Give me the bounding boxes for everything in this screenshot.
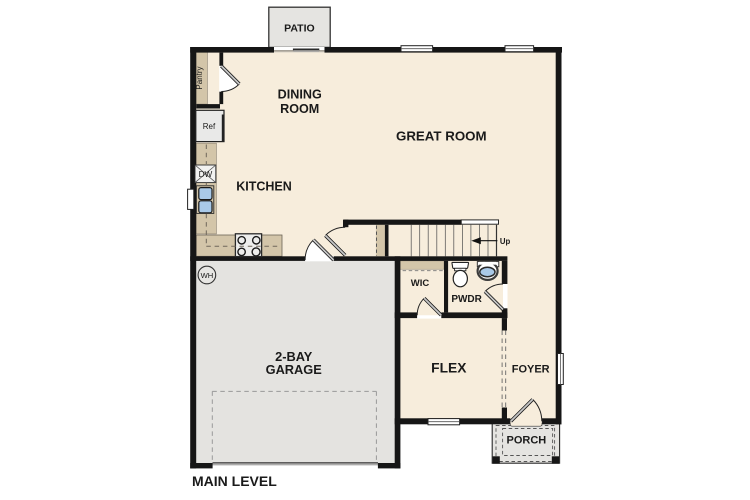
svg-text:PWDR: PWDR: [451, 294, 482, 305]
svg-text:WIC: WIC: [411, 278, 430, 289]
svg-text:PORCH: PORCH: [507, 435, 547, 447]
svg-text:ROOM: ROOM: [280, 102, 319, 116]
svg-text:DW: DW: [199, 170, 213, 179]
svg-text:GARAGE: GARAGE: [266, 362, 323, 377]
svg-text:FLEX: FLEX: [431, 361, 467, 376]
svg-text:FOYER: FOYER: [512, 364, 550, 376]
svg-text:PATIO: PATIO: [284, 22, 315, 34]
svg-text:Pantry: Pantry: [195, 66, 204, 89]
svg-text:Up: Up: [500, 237, 511, 246]
svg-text:MAIN LEVEL: MAIN LEVEL: [192, 473, 277, 489]
svg-text:Ref: Ref: [203, 122, 216, 131]
svg-text:KITCHEN: KITCHEN: [236, 179, 292, 193]
svg-text:GREAT ROOM: GREAT ROOM: [396, 128, 487, 143]
svg-text:WH: WH: [201, 271, 214, 280]
svg-text:DINING: DINING: [278, 87, 322, 101]
